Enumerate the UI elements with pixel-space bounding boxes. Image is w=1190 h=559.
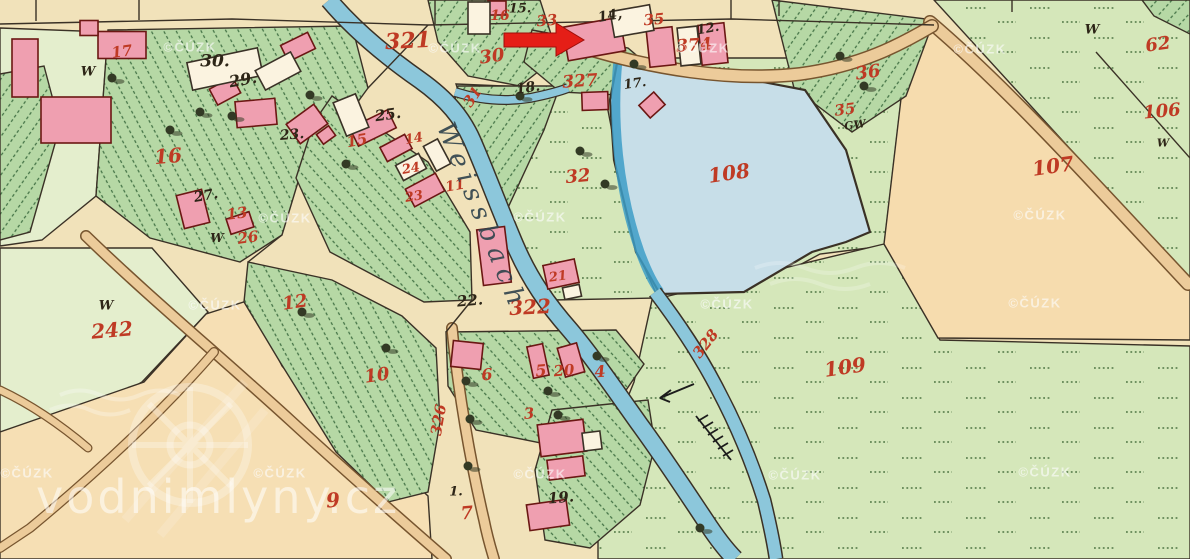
cadastral-map[interactable]: 1716321301633353743635621061071083273132…: [0, 0, 1190, 559]
site-watermark: vodnimlyny.cz: [36, 470, 400, 524]
